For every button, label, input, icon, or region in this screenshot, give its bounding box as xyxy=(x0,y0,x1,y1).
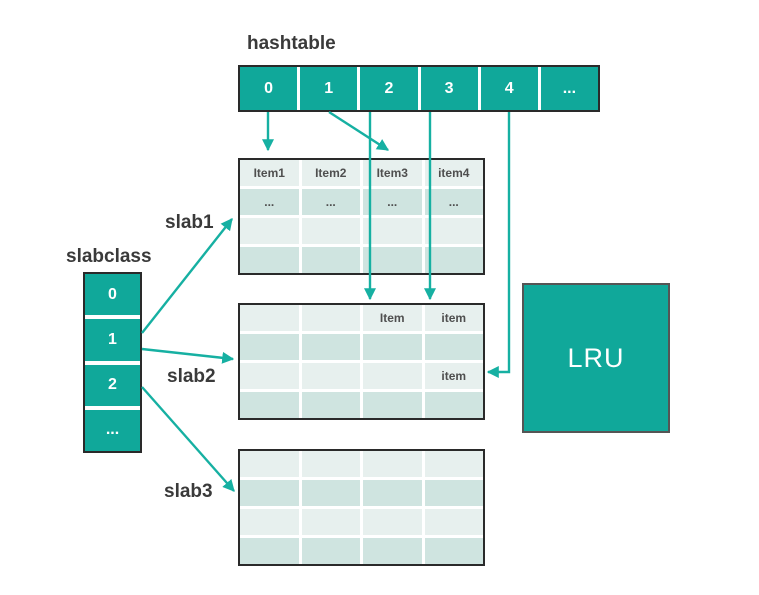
slab2-table: Itemitemitem xyxy=(238,303,485,420)
slab2-label: slab2 xyxy=(167,366,216,388)
slab3-cell-r2c2 xyxy=(363,509,422,535)
slab1-table: Item1Item2Item3item4............ xyxy=(238,158,485,275)
slab3-cell-r3c3 xyxy=(425,538,484,564)
slab2-cell-r0c2: Item xyxy=(363,305,422,331)
arrow-hashtable-1-to-slab1 xyxy=(329,112,388,150)
slab2-cell-r2c3: item xyxy=(425,363,484,389)
hashtable-cell-3: 3 xyxy=(421,67,478,110)
slab1-cell-r3c0 xyxy=(240,247,299,273)
slab2-cell-r1c1 xyxy=(302,334,361,360)
arrow-slabclass-1-to-slab2 xyxy=(142,349,233,359)
slab2-cell-r0c1 xyxy=(302,305,361,331)
memcached-architecture-diagram: hashtable 01234... slabclass 012... slab… xyxy=(0,0,759,595)
slab3-cell-r2c3 xyxy=(425,509,484,535)
slab3-cell-r0c2 xyxy=(363,451,422,477)
slab2-cell-r3c2 xyxy=(363,392,422,418)
slab1-cell-r0c0: Item1 xyxy=(240,160,299,186)
slab3-cell-r2c0 xyxy=(240,509,299,535)
arrow-hashtable-4-to-slab2-item xyxy=(488,112,509,372)
arrow-slabclass-2-to-slab3 xyxy=(142,387,234,491)
slab2-cell-r0c3: item xyxy=(425,305,484,331)
slab1-cell-r2c2 xyxy=(363,218,422,244)
slab1-cell-r3c3 xyxy=(425,247,484,273)
hashtable-cell-1: 1 xyxy=(300,67,357,110)
slab1-cell-r3c2 xyxy=(363,247,422,273)
slabclass-cell-2: 2 xyxy=(85,365,140,406)
hashtable-cell-4: 4 xyxy=(481,67,538,110)
slab3-cell-r1c3 xyxy=(425,480,484,506)
slab2-cell-r2c1 xyxy=(302,363,361,389)
slabclass-cell-1: 1 xyxy=(85,319,140,360)
slabclass-cell-3: ... xyxy=(85,410,140,451)
slab1-cell-r0c3: item4 xyxy=(425,160,484,186)
slabclass-label: slabclass xyxy=(66,246,152,268)
arrow-slabclass-1-to-slab1 xyxy=(142,219,232,333)
slab1-cell-r3c1 xyxy=(302,247,361,273)
slab2-cell-r3c3 xyxy=(425,392,484,418)
slab3-cell-r1c2 xyxy=(363,480,422,506)
slab3-cell-r1c1 xyxy=(302,480,361,506)
slab3-cell-r0c3 xyxy=(425,451,484,477)
slab3-table xyxy=(238,449,485,566)
slab2-cell-r1c2 xyxy=(363,334,422,360)
slab3-label: slab3 xyxy=(164,481,213,503)
slabclass-array: 012... xyxy=(83,272,142,453)
slab2-cell-r2c2 xyxy=(363,363,422,389)
hashtable-array: 01234... xyxy=(238,65,600,112)
lru-label: LRU xyxy=(567,343,624,374)
hashtable-cell-2: 2 xyxy=(360,67,417,110)
slab3-cell-r3c1 xyxy=(302,538,361,564)
hashtable-cell-0: 0 xyxy=(240,67,297,110)
slab3-cell-r3c0 xyxy=(240,538,299,564)
hashtable-cell-5: ... xyxy=(541,67,598,110)
slab2-cell-r3c1 xyxy=(302,392,361,418)
slab2-cell-r0c0 xyxy=(240,305,299,331)
slab3-cell-r0c1 xyxy=(302,451,361,477)
slab1-cell-r2c0 xyxy=(240,218,299,244)
slab2-cell-r1c0 xyxy=(240,334,299,360)
slab1-cell-r2c1 xyxy=(302,218,361,244)
slabclass-cell-0: 0 xyxy=(85,274,140,315)
slab2-cell-r2c0 xyxy=(240,363,299,389)
lru-box: LRU xyxy=(522,283,670,433)
slab3-cell-r0c0 xyxy=(240,451,299,477)
slab1-cell-r0c1: Item2 xyxy=(302,160,361,186)
slab1-cell-r1c3: ... xyxy=(425,189,484,215)
slab3-cell-r1c0 xyxy=(240,480,299,506)
slab1-cell-r0c2: Item3 xyxy=(363,160,422,186)
slab1-cell-r1c1: ... xyxy=(302,189,361,215)
slab2-cell-r3c0 xyxy=(240,392,299,418)
slab3-cell-r3c2 xyxy=(363,538,422,564)
slab1-cell-r2c3 xyxy=(425,218,484,244)
slab2-cell-r1c3 xyxy=(425,334,484,360)
slab1-label: slab1 xyxy=(165,212,214,234)
slab1-cell-r1c2: ... xyxy=(363,189,422,215)
slab1-cell-r1c0: ... xyxy=(240,189,299,215)
hashtable-label: hashtable xyxy=(247,33,336,55)
slab3-cell-r2c1 xyxy=(302,509,361,535)
